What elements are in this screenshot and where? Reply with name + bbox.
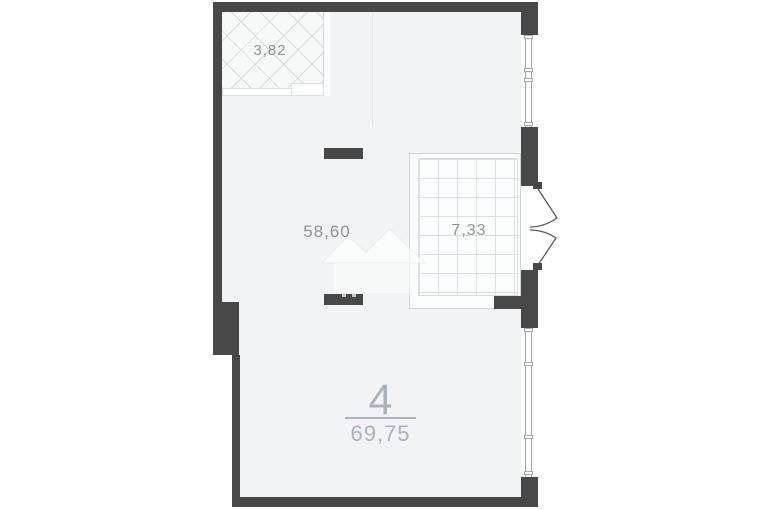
- living-room-area-label: 58,60: [295, 222, 359, 242]
- floorplan-canvas: 3,82 58,60 7,33 4 69,75: [0, 0, 770, 510]
- unit-divider-line: [345, 417, 416, 419]
- balcony-area-label: 3,82: [242, 42, 298, 59]
- loggia-area-label: 7,33: [443, 222, 495, 240]
- unit-total-area: 69,75: [333, 421, 428, 447]
- door-hinge-bottom: [533, 263, 542, 270]
- door-hinge-top: [533, 182, 542, 189]
- unit-number: 4: [345, 380, 416, 420]
